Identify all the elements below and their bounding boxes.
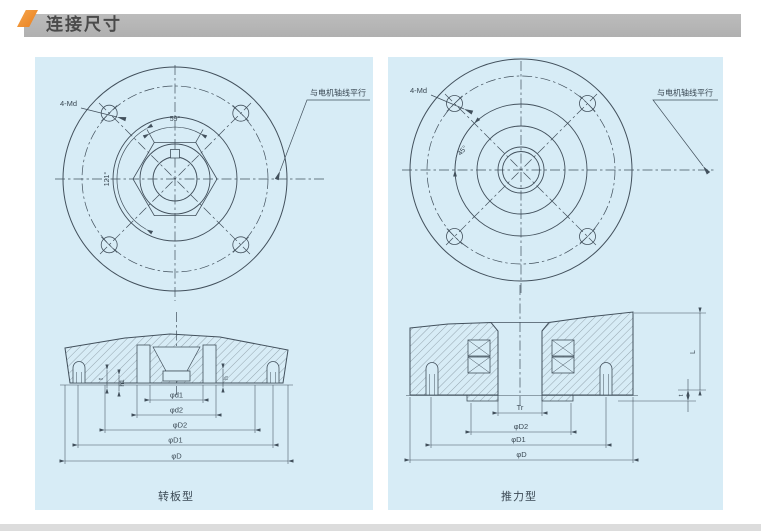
section-header-bar <box>24 14 741 37</box>
axis-note-label: 与电机轴线平行 <box>657 88 713 98</box>
angle-45-dimension: 45° <box>455 123 474 170</box>
left-caption: 转板型 <box>158 489 194 503</box>
left-technical-drawing: 59° 121° 4-Md 与电机轴线平行 <box>35 57 373 510</box>
stud-right <box>267 362 279 383</box>
right-technical-drawing: 45° 4-Md 与电机轴线平行 <box>388 57 723 510</box>
dim-h1-label: h1 <box>119 379 126 387</box>
dim-phi-D: φD <box>516 450 527 459</box>
diameter-dimensions: φd1 φd2 φD2 φD1 φD <box>65 391 288 462</box>
stud-right <box>600 363 612 396</box>
pedestal <box>163 371 190 381</box>
bolt-label: 4-Md <box>60 99 77 108</box>
keyway <box>171 150 180 159</box>
dim-phi-d2: φd2 <box>170 406 183 415</box>
axis-note-callout: 与电机轴线平行 <box>280 88 370 172</box>
dim-phi-D2: φD2 <box>173 421 187 430</box>
drawing-panel-left: 59° 121° 4-Md 与电机轴线平行 <box>35 57 373 510</box>
dim-L-label: L <box>690 350 697 354</box>
axis-note-label: 与电机轴线平行 <box>310 88 366 98</box>
dim-phi-D1: φD1 <box>511 435 525 444</box>
right-caption: 推力型 <box>501 489 537 503</box>
dim-phi-D1: φD1 <box>168 436 182 445</box>
catalog-page: 连接尺寸 <box>0 0 761 531</box>
dim-t-label: t <box>678 394 685 396</box>
drawing-panel-right: 45° 4-Md 与电机轴线平行 <box>388 57 723 510</box>
angle-top-label: 59° <box>170 115 181 123</box>
stud-left <box>426 363 438 396</box>
dim-phi-D2: φD2 <box>514 422 528 431</box>
left-cross-section-view: t h1 h φd1 φd2 <box>60 334 293 464</box>
slot-right <box>203 345 216 383</box>
dim-phi-D: φD <box>171 452 182 461</box>
diameter-dimensions: Tr φD2 φD1 φD <box>410 403 633 460</box>
dim-t-label: t <box>98 378 105 380</box>
bottom-divider-bar <box>0 524 761 531</box>
slot-left <box>137 345 150 383</box>
dim-h-label: h <box>223 376 230 380</box>
dim-phi-d1: φd1 <box>170 391 183 400</box>
angle-side-label: 121° <box>103 172 111 187</box>
page-title: 连接尺寸 <box>46 13 122 37</box>
step-left <box>467 395 498 401</box>
right-cross-section-view: Tr φD2 φD1 φD L t <box>406 312 706 463</box>
angle-top-label: 45° <box>456 144 469 157</box>
bolt-label: 4-Md <box>410 86 427 95</box>
axis-note-callout: 与电机轴线平行 <box>653 88 718 167</box>
dim-Tr: Tr <box>517 403 524 412</box>
step-right <box>542 395 573 401</box>
bolt-callout: 4-Md <box>410 86 464 109</box>
stud-left <box>73 362 85 383</box>
